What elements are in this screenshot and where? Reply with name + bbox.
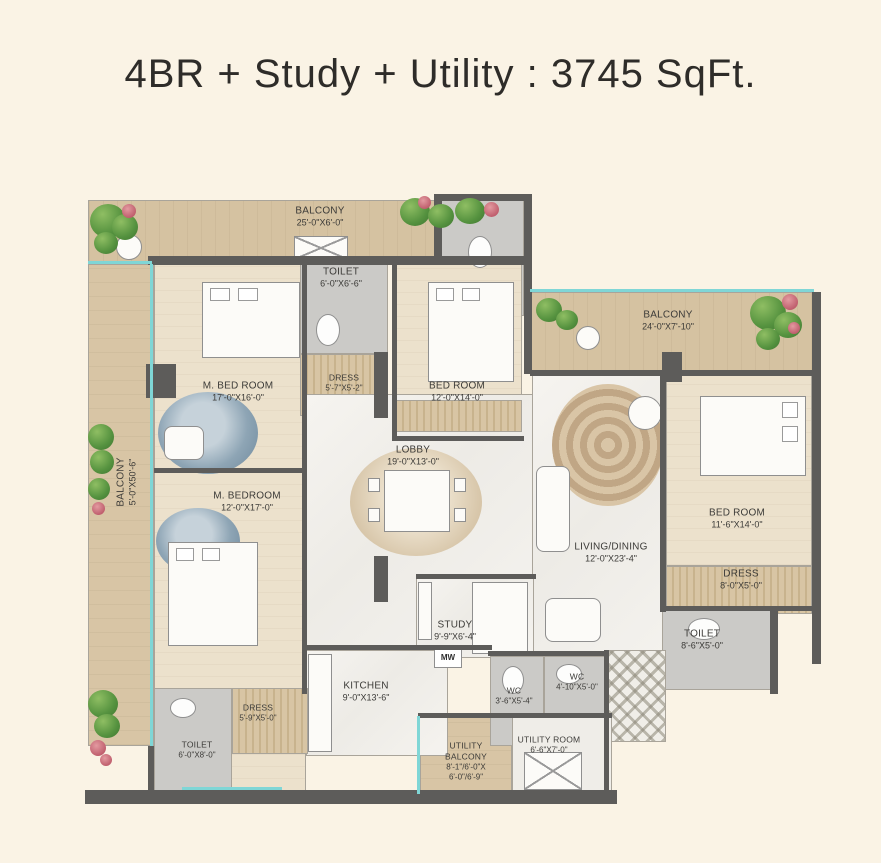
daybed bbox=[472, 582, 528, 654]
sofa bbox=[536, 466, 570, 552]
pillow bbox=[782, 426, 798, 442]
label-wc-right: WC 4'-10"X5'-0" bbox=[556, 671, 598, 692]
label-toilet-bottom: TOILET 6'-0"X8'-0" bbox=[178, 739, 215, 760]
pillow bbox=[462, 288, 480, 301]
coffee-table bbox=[545, 598, 601, 642]
plant bbox=[94, 232, 118, 254]
label-study: STUDY 9'-9"X6'-4" bbox=[434, 619, 476, 644]
washer bbox=[524, 752, 582, 790]
chair bbox=[368, 508, 380, 522]
floor-plan-page: 4BR + Study + Utility : 3745 SqFt. bbox=[0, 0, 881, 863]
wall-segment bbox=[154, 468, 304, 473]
railing-top-left bbox=[88, 261, 152, 264]
flower-plant bbox=[100, 754, 112, 766]
balcony-table bbox=[576, 326, 600, 350]
wall-segment bbox=[770, 610, 778, 694]
pillow bbox=[210, 288, 230, 301]
plant bbox=[428, 204, 454, 228]
label-wc-left: WC 3'-6"X5'-4" bbox=[495, 685, 532, 706]
wall-segment bbox=[392, 436, 524, 441]
label-m-bed-room: M. BED ROOM 17'-0"X16'-0" bbox=[203, 380, 274, 405]
label-balcony-left: BALCONY 5'-0"X50'-6" bbox=[115, 457, 140, 506]
wall-segment bbox=[660, 374, 666, 612]
pillow bbox=[238, 288, 258, 301]
toilet-fixture bbox=[170, 698, 196, 718]
label-toilet-top: TOILET 6'-0"X6'-6" bbox=[320, 266, 362, 291]
label-bed-room-top: BED ROOM 12'-0"X14'-0" bbox=[429, 380, 485, 405]
label-living-dining: LIVING/DINING 12'-0"X23'-4" bbox=[574, 541, 647, 566]
label-utility-room: UTILITY ROOM 6'-6"X7'-0" bbox=[518, 734, 581, 755]
wall-segment bbox=[416, 574, 536, 579]
railing-left bbox=[150, 264, 153, 746]
wall-segment bbox=[662, 606, 812, 611]
wall-pillar bbox=[374, 352, 388, 418]
flower-plant bbox=[92, 502, 105, 515]
plant bbox=[556, 310, 578, 330]
label-lobby: LOBBY 19'-0"X13'-0" bbox=[387, 444, 439, 469]
flower-plant bbox=[122, 204, 136, 218]
wall-segment bbox=[434, 194, 532, 201]
label-utility-balcony: UTILITY BALCONY 8'-1"/6'-0"X 6'-0"/6'-9" bbox=[434, 741, 498, 784]
wall-segment bbox=[148, 256, 532, 265]
railing-right-balcony bbox=[530, 289, 814, 292]
label-bed-room-right: BED ROOM 11'-6"X14'-0" bbox=[709, 507, 765, 532]
chair bbox=[454, 508, 466, 522]
wall-segment bbox=[418, 713, 612, 718]
plant bbox=[94, 714, 120, 738]
toilet-fixture bbox=[316, 314, 340, 346]
wall-pillar bbox=[374, 556, 388, 602]
wall-segment bbox=[524, 194, 532, 374]
wall-segment bbox=[302, 264, 307, 694]
pillow bbox=[782, 402, 798, 418]
label-dress-top: DRESS 5'-7"X5'-2" bbox=[325, 372, 362, 393]
wall-segment bbox=[812, 292, 821, 664]
label-m-bedroom: M. BEDROOM 12'-0"X17'-0" bbox=[213, 490, 281, 515]
flower-plant bbox=[418, 196, 431, 209]
wardrobe bbox=[396, 400, 522, 432]
pillow bbox=[176, 548, 194, 561]
chair bbox=[454, 478, 466, 492]
pillow bbox=[202, 548, 220, 561]
dining-table bbox=[384, 470, 450, 532]
flower-plant bbox=[782, 294, 798, 310]
wall-segment bbox=[392, 264, 397, 440]
wall-segment bbox=[488, 651, 608, 656]
flower-plant bbox=[788, 322, 800, 334]
plant bbox=[756, 328, 780, 350]
label-toilet-right: TOILET 8'-6"X5'-0" bbox=[681, 628, 723, 653]
label-balcony-right: BALCONY 24'-0"X7'-10" bbox=[642, 309, 694, 334]
label-dress-right: DRESS 8'-0"X5'-0" bbox=[720, 568, 762, 593]
plant bbox=[90, 450, 114, 474]
wall-segment bbox=[604, 650, 609, 790]
railing-utility-balcony bbox=[417, 716, 420, 794]
pillow bbox=[436, 288, 454, 301]
label-balcony-top: BALCONY 25'-0"X6'-0" bbox=[295, 205, 344, 230]
plant bbox=[88, 478, 110, 500]
wall-segment bbox=[306, 645, 492, 650]
floor-pattern-area bbox=[604, 650, 666, 742]
kitchen-counter bbox=[308, 654, 332, 752]
armchair bbox=[628, 396, 662, 430]
wall-segment bbox=[85, 790, 617, 804]
plant bbox=[88, 424, 114, 450]
chair bbox=[368, 478, 380, 492]
study-desk bbox=[418, 582, 432, 640]
wall-pillar bbox=[662, 352, 682, 382]
label-kitchen: KITCHEN 9'-0"X13'-6" bbox=[343, 680, 390, 705]
label-dress-bottom: DRESS 5'-9"X5'-0" bbox=[239, 702, 276, 723]
railing-bottom bbox=[182, 787, 282, 790]
flower-plant bbox=[484, 202, 499, 217]
wall-segment bbox=[148, 746, 154, 792]
floor-plan: MW BALCONY 25'-0"X6'-0" BALCONY 5'-0"X50… bbox=[0, 0, 881, 863]
armchair bbox=[164, 426, 204, 460]
plant bbox=[455, 198, 485, 224]
